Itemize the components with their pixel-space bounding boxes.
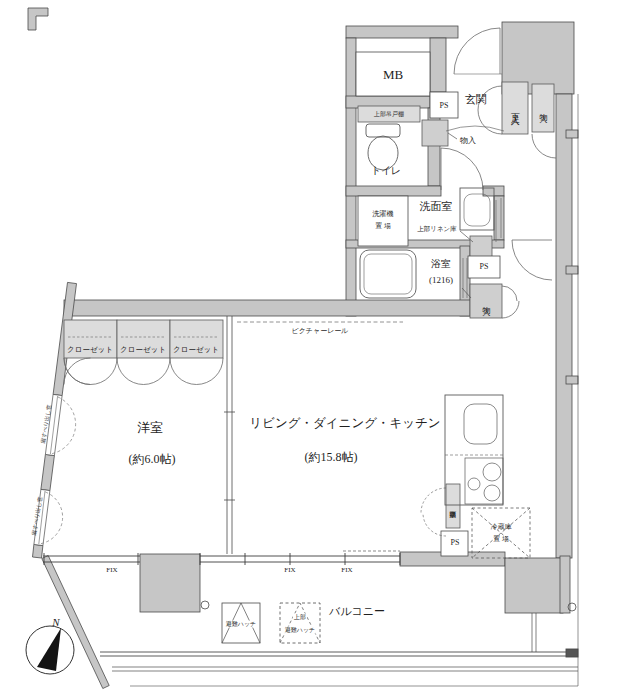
wall-slant-b xyxy=(41,454,55,490)
bathtub-icon xyxy=(360,250,416,298)
burner-1-icon xyxy=(483,463,501,481)
railing-end-block xyxy=(566,649,578,657)
mb-label: MB xyxy=(383,68,403,83)
compass-needle-icon xyxy=(37,628,61,671)
western-room-size-label: (約6.0帖) xyxy=(129,453,176,467)
lower-storage-box xyxy=(446,484,460,528)
mid-storage-door-1 xyxy=(502,286,517,301)
closet-label-1: クローゼット xyxy=(67,346,113,355)
fridge-label-2: 置 場 xyxy=(493,535,509,543)
closet-door-arcs-2 xyxy=(117,358,170,385)
vanity-sink-icon xyxy=(464,194,490,226)
western-room-label: 洋室 xyxy=(137,421,163,436)
fix-label-1: FIX xyxy=(106,566,117,574)
wall-toilet-washroom-a xyxy=(346,186,441,196)
upper-escape-hatch-triangle xyxy=(280,603,320,643)
entrance-storage-door-arc xyxy=(532,134,556,158)
fridge-label-1: 冷蔵庫 xyxy=(491,523,512,531)
wall-mb-genkan xyxy=(430,38,446,92)
wall-slant-c xyxy=(33,544,43,558)
closet-doors-1 xyxy=(64,358,91,385)
drain-icon-left xyxy=(201,601,209,609)
ldk-label: リビング・ダイニング・キッチン xyxy=(249,416,440,430)
escape-hatch-label: 避難ハッチ xyxy=(225,621,257,628)
bath-label: 浴室 xyxy=(431,258,451,270)
wall-nub-2 xyxy=(566,266,578,274)
upper-escape-hatch-box xyxy=(280,603,320,643)
mid-storage-door-2 xyxy=(502,301,519,318)
wall-top xyxy=(346,26,458,38)
wall-nub-3 xyxy=(566,376,578,384)
closet-label-2: クローゼット xyxy=(120,346,166,355)
upper-escape-hatch xyxy=(280,603,320,643)
washer-label-2: 置 場 xyxy=(375,222,391,230)
upper-escape-hatch-label-2: 避難ハッチ xyxy=(284,627,316,634)
floor-plan: MB PS 玄関 下足入 物入 上部吊戸棚 トイレ 物入 洗面室 洗濯機 置 場… xyxy=(0,0,618,692)
leader-hall-storage xyxy=(448,133,457,139)
linen-box xyxy=(470,236,492,258)
wall-nub-1 xyxy=(566,130,578,138)
burner-2-icon xyxy=(484,485,500,501)
bath-size-label: (1216) xyxy=(429,275,453,285)
burner-3-icon xyxy=(468,478,480,490)
upper-cupboard-label: 上部吊戸棚 xyxy=(374,111,404,118)
north-label: N xyxy=(52,616,59,629)
ps-bottom-label: PS xyxy=(451,538,460,547)
toilet-tank-icon xyxy=(366,124,400,137)
balcony-label: バルコニー xyxy=(329,605,385,618)
picture-rail-label: ピクチャーレール xyxy=(292,327,349,335)
upper-escape-hatch-label-1: 上部 xyxy=(293,614,307,621)
ldk-size-label: (約15.8帖) xyxy=(305,451,358,465)
washroom-label: 洗面室 xyxy=(420,200,453,213)
entrance-label: 玄関 xyxy=(465,93,487,106)
closet-door-arcs-1 xyxy=(64,358,117,385)
kitchen-sink-icon xyxy=(464,404,497,444)
closet-door-arcs-3 xyxy=(170,358,223,385)
toilet-door-arc xyxy=(441,148,483,190)
wall-corridor-left xyxy=(494,196,504,240)
linen-label: 上部リネン庫 xyxy=(417,225,456,232)
fix-label-2: FIX xyxy=(284,566,295,574)
ps-mid-label: PS xyxy=(480,262,489,271)
compass xyxy=(26,626,74,674)
shoe-cabinet-label: 下足入 xyxy=(510,107,520,110)
entry-door-arc xyxy=(454,28,500,74)
wall-ldk-north xyxy=(64,300,470,316)
hall-storage-box xyxy=(422,120,448,146)
ps-top-label: PS xyxy=(440,101,449,110)
lower-storage-swing-1 xyxy=(421,488,446,513)
shoe-cabinet-door-2 xyxy=(478,110,502,134)
bathtub-inner xyxy=(364,254,412,294)
wall-corner-mark xyxy=(28,8,48,30)
pillar-south-right xyxy=(505,558,563,613)
wall-right xyxy=(556,94,572,558)
room-partition xyxy=(224,316,235,554)
fridge-space xyxy=(472,508,530,558)
fix-label-3: FIX xyxy=(341,566,352,574)
toilet-label: トイレ xyxy=(371,165,402,177)
ldk-door-arc xyxy=(512,240,552,280)
pillar-south-left xyxy=(140,554,200,612)
south-windows xyxy=(43,551,400,565)
wall-toilet-washroom-b xyxy=(483,186,504,196)
closet-label-3: クローゼット xyxy=(173,346,219,355)
hall-storage-label: 物入 xyxy=(460,136,476,145)
washer-label-1: 洗濯機 xyxy=(373,210,394,218)
entry-step-line xyxy=(446,126,504,131)
wall-service-left xyxy=(346,38,356,316)
entrance-storage-label: 物入 xyxy=(538,107,547,109)
mid-storage-label: 物入 xyxy=(481,300,490,302)
